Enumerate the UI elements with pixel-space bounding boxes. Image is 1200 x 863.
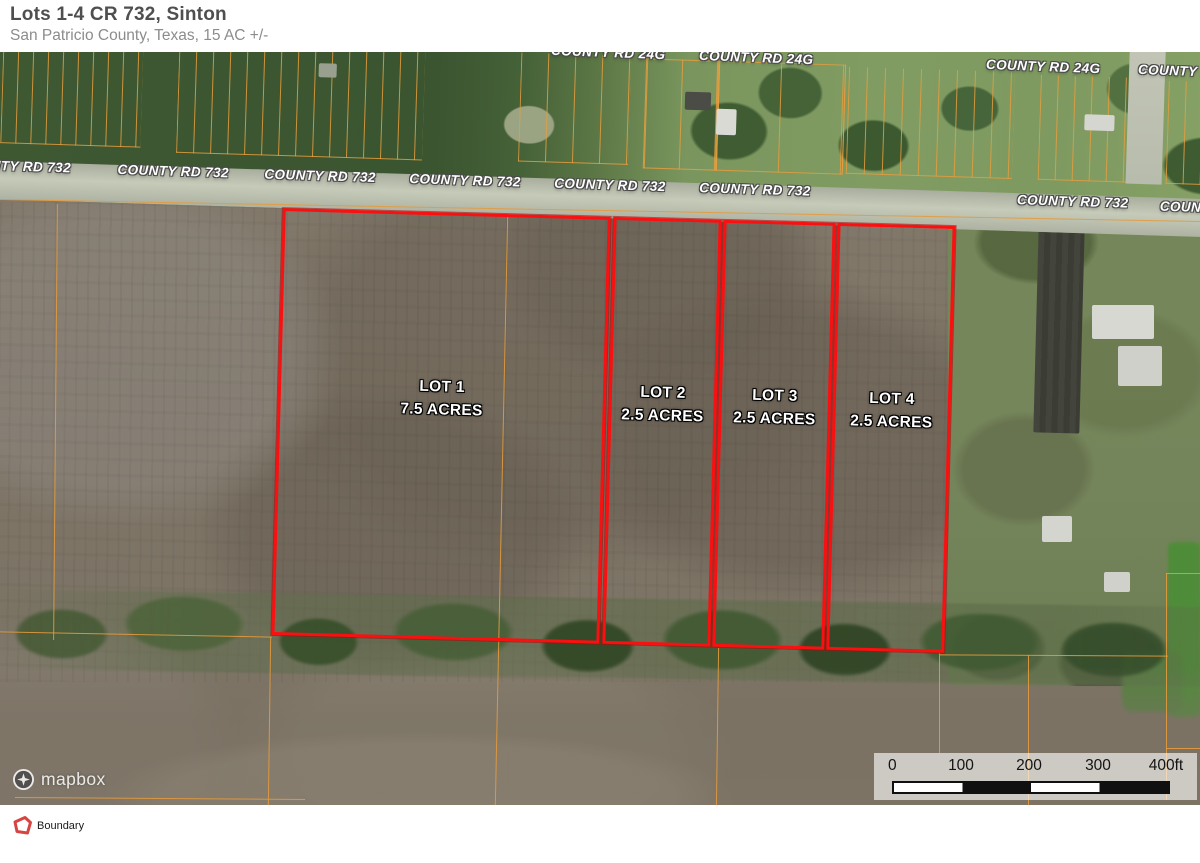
lot-3-label: LOT 3 2.5 ACRES (721, 383, 828, 432)
house (685, 92, 712, 111)
lot-4-boundary: LOT 4 2.5 ACRES (826, 223, 955, 653)
scale-tick: 200 (1016, 757, 1042, 775)
lot-name: LOT 2 (612, 380, 715, 406)
white-building (1092, 305, 1154, 339)
mapbox-icon (12, 768, 35, 791)
lot-2-label: LOT 2 2.5 ACRES (611, 380, 714, 429)
white-building (1118, 346, 1162, 386)
boundary-lots-group: LOT 1 7.5 ACRES LOT 2 2.5 ACRES LOT 3 2.… (271, 208, 955, 653)
parcel-lines (1166, 81, 1200, 186)
parcel-lines (846, 67, 1015, 179)
house (716, 109, 737, 136)
lot-name: LOT 4 (836, 386, 949, 412)
white-building (1042, 516, 1072, 542)
page-subtitle: San Patricio County, Texas, 15 AC +/- (10, 27, 268, 45)
scale-tick: 0 (888, 757, 897, 775)
parcel-lines (176, 52, 426, 160)
legend-item-label: Boundary (37, 820, 84, 832)
lot-acres: 2.5 ACRES (835, 409, 948, 435)
road-label-county-rd-732: COUNTY RD 732 (0, 157, 71, 175)
lot-3-boundary: LOT 3 2.5 ACRES (712, 220, 835, 650)
lot-acres: 2.5 ACRES (721, 406, 828, 432)
white-building (1104, 572, 1130, 592)
scale-bar: 0 100 200 300 400ft (874, 753, 1197, 800)
parcel-lines (0, 52, 144, 148)
house (1084, 114, 1114, 131)
barn-building (1033, 227, 1084, 433)
parcel-line (1166, 748, 1200, 749)
scale-tick: 100 (948, 757, 974, 775)
scale-tick: 400ft (1149, 757, 1183, 775)
parcel-line (939, 653, 940, 753)
mapbox-logo-text: mapbox (41, 769, 106, 790)
scale-segments (892, 781, 1170, 794)
scale-tick: 300 (1085, 757, 1111, 775)
lot-name: LOT 3 (722, 383, 829, 409)
mapbox-attribution[interactable]: mapbox (12, 766, 106, 792)
parcel-lines (643, 58, 720, 170)
map-canvas[interactable]: COUNTY RD 732 COUNTY RD 732 COUNTY RD 73… (0, 52, 1200, 805)
parcel-line (1166, 573, 1200, 574)
lot-2-boundary: LOT 2 2.5 ACRES (602, 217, 721, 647)
legend: Boundary (0, 805, 1200, 863)
boundary-icon (11, 814, 35, 838)
header: Lots 1-4 CR 732, Sinton San Patricio Cou… (0, 0, 1200, 52)
page-title: Lots 1-4 CR 732, Sinton (10, 4, 227, 26)
lot-1-label: LOT 1 7.5 ACRES (280, 371, 603, 426)
parcel-lines (518, 53, 631, 165)
lot-acres: 2.5 ACRES (611, 403, 714, 429)
lot-1-boundary: LOT 1 7.5 ACRES (271, 208, 610, 644)
house (319, 63, 337, 78)
lot-4-label: LOT 4 2.5 ACRES (835, 386, 948, 435)
